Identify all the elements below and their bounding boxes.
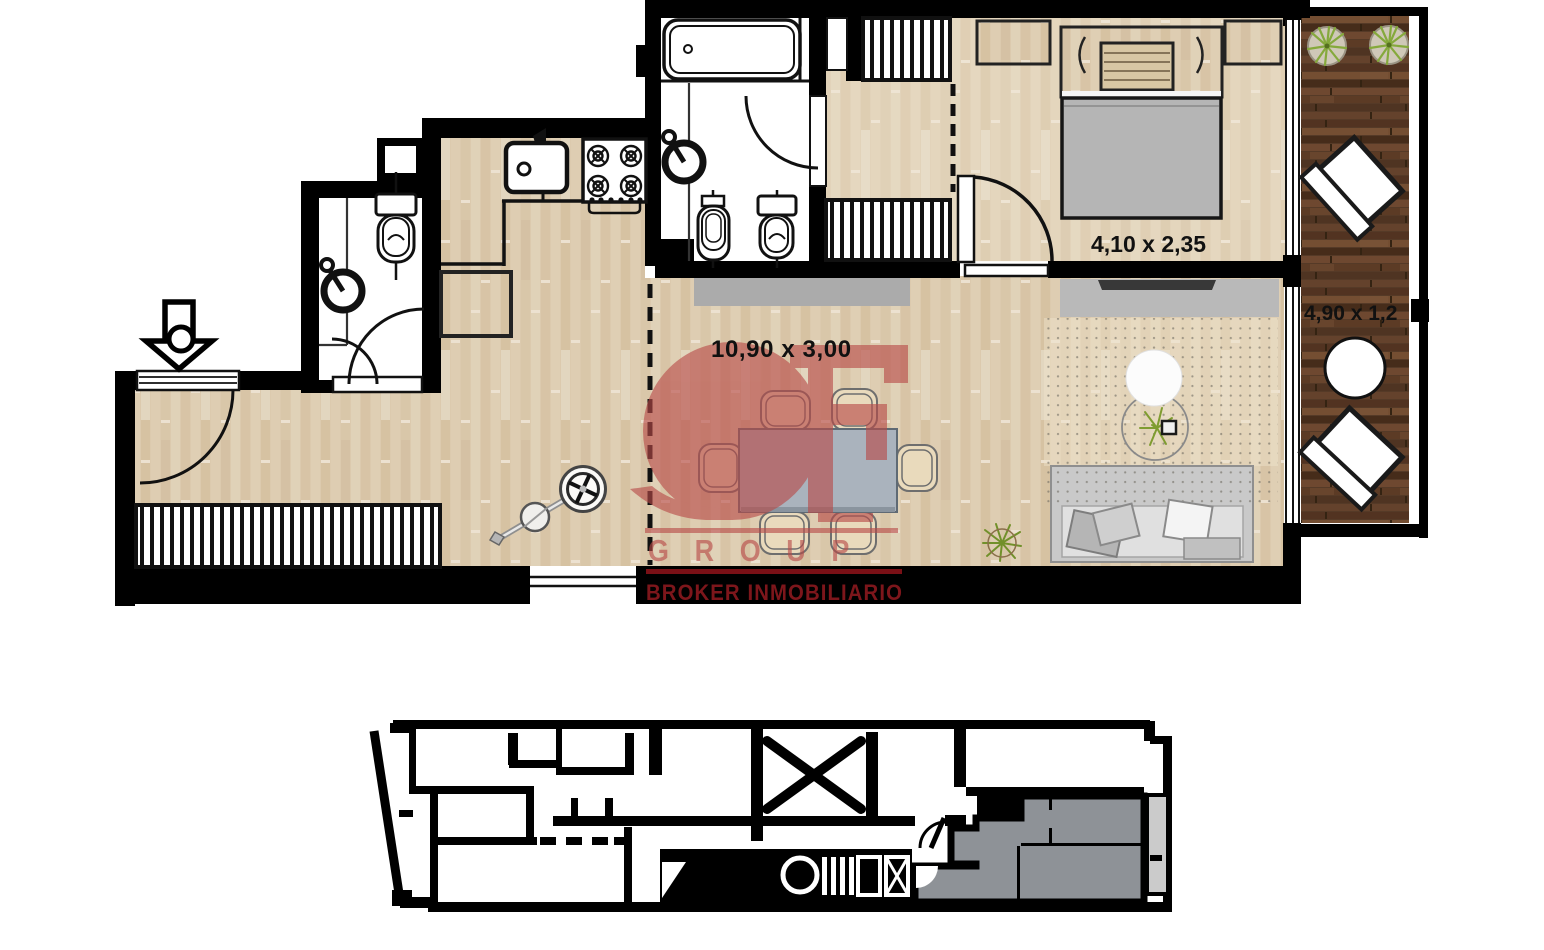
svg-text:4,10 x 2,35: 4,10 x 2,35 [1091, 231, 1206, 257]
svg-text:4,90 x 1,2: 4,90 x 1,2 [1304, 302, 1397, 325]
svg-text:GROUP: GROUP [648, 533, 875, 568]
svg-text:10,90 x 3,00: 10,90 x 3,00 [711, 336, 852, 363]
svg-text:BROKER INMOBILIARIO: BROKER INMOBILIARIO [646, 580, 903, 605]
